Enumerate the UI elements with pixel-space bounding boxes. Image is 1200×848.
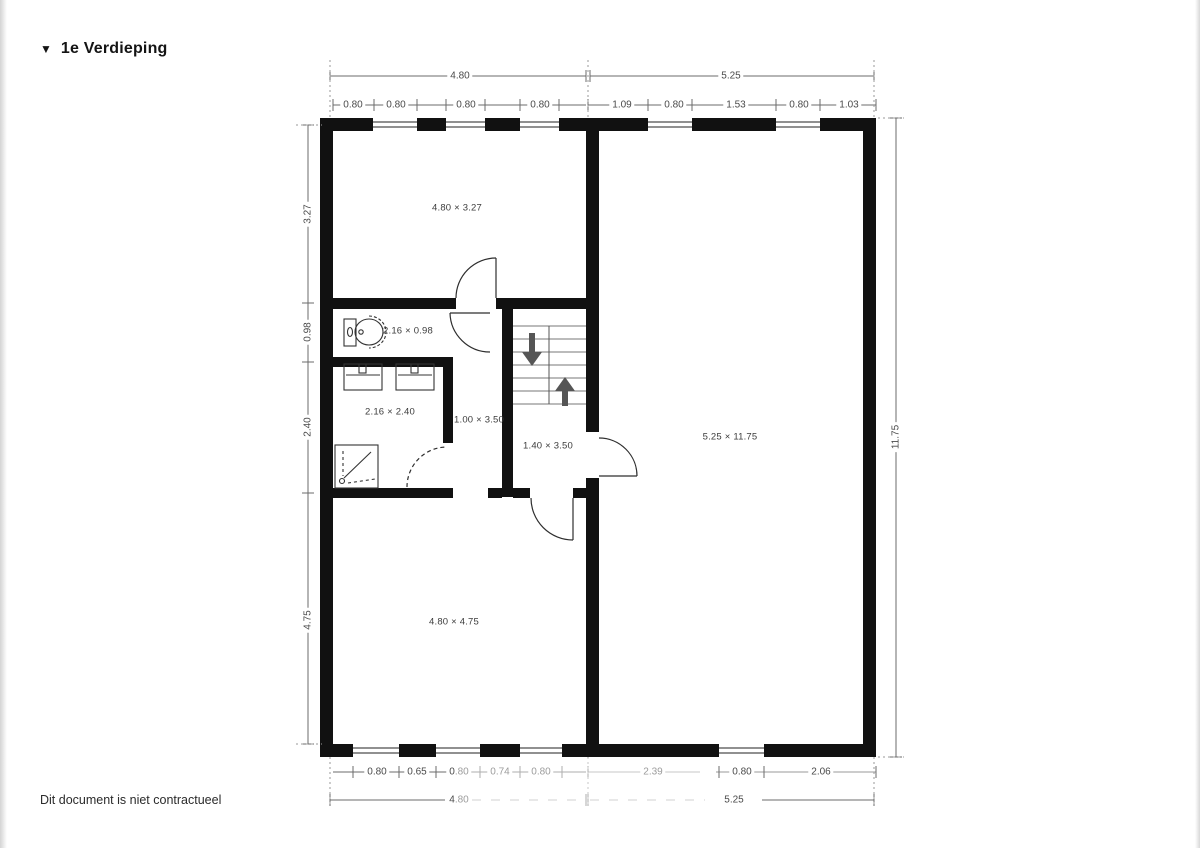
- dimension-label: 1.03: [836, 100, 861, 111]
- dimension-label: 0.98: [303, 319, 314, 344]
- dimension-label: 4.80: [447, 71, 472, 82]
- dimension-label: 5.25: [721, 795, 746, 806]
- dimension-label: 0.65: [404, 767, 429, 778]
- dimension-label: 3.27: [303, 201, 314, 226]
- door-right-room: [599, 438, 637, 476]
- floor-plan-page: ▼ 1e Verdieping: [0, 0, 1200, 848]
- dimension-label: 5.25: [718, 71, 743, 82]
- dimension-label: 1.09: [609, 100, 634, 111]
- room-size-label: 4.80 × 3.27: [432, 203, 482, 214]
- door-top-room: [456, 258, 496, 298]
- dimension-label: 0.80: [661, 100, 686, 111]
- door-bottom-room: [531, 498, 573, 540]
- dimension-label: 2.06: [808, 767, 833, 778]
- room-size-label: 1.40 × 3.50: [523, 441, 573, 452]
- dimension-label: 0.80: [453, 100, 478, 111]
- dimension-label: 1.53: [723, 100, 748, 111]
- floor-plan-drawing: [0, 0, 1200, 848]
- walls: [320, 118, 876, 757]
- room-size-label: 1.00 × 3.50: [454, 415, 504, 426]
- dimension-label: 11.75: [891, 422, 902, 452]
- door-toilet: [450, 313, 490, 352]
- stairs-down-arrow-icon: [522, 333, 542, 366]
- dimension-label: 0.80: [729, 767, 754, 778]
- room-size-label: 4.80 × 4.75: [429, 617, 479, 628]
- dimension-label: 0.80: [786, 100, 811, 111]
- room-size-label: 2.16 × 0.98: [383, 326, 433, 337]
- dimension-label: 0.80: [383, 100, 408, 111]
- door-bathroom: [407, 447, 447, 487]
- dimension-label: 0.80: [340, 100, 365, 111]
- toilet-icon: [344, 316, 386, 348]
- dimension-lines: [296, 60, 904, 806]
- sink-icon: [396, 364, 434, 390]
- room-size-label: 5.25 × 11.75: [703, 432, 758, 443]
- staircase: [513, 326, 586, 406]
- shower-icon: [335, 445, 378, 488]
- dimension-label: 2.40: [303, 414, 314, 439]
- room-size-label: 2.16 × 2.40: [365, 407, 415, 418]
- sink-icon: [344, 364, 382, 390]
- dimension-label: 0.80: [364, 767, 389, 778]
- dimension-label: 0.80: [527, 100, 552, 111]
- watermark-fade: [455, 758, 705, 806]
- dimension-label: 4.75: [303, 607, 314, 632]
- disclaimer-text: Dit document is niet contractueel: [40, 793, 221, 807]
